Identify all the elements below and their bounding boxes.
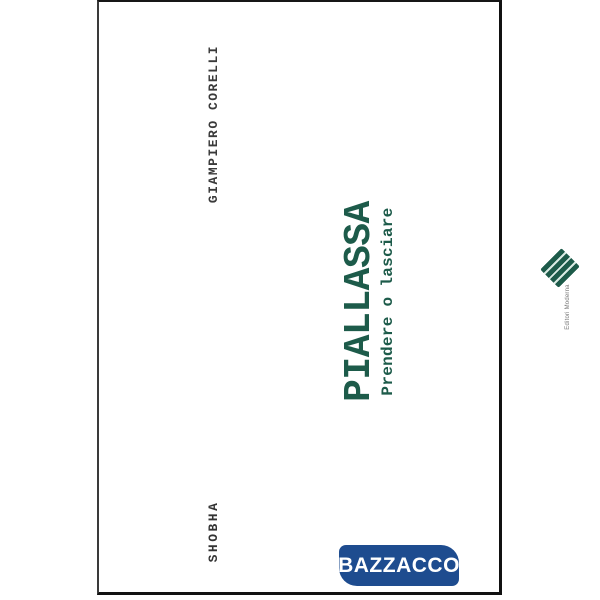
book-subtitle: Prendere o lasciare [379,207,397,396]
book-title: PIALLASSA [340,200,380,403]
publisher-logo-icon [540,248,580,288]
author-name: GIAMPIERO CORELLI [205,44,223,204]
bazzacco-watermark-label: BAZZACCO [338,554,460,578]
publisher-name: Editori Moderna [563,280,573,334]
photographer-credit: SHOBHA [205,500,223,563]
bazzacco-watermark-badge: BAZZACCO [339,545,459,586]
book-cover: GIAMPIERO CORELLI PIALLASSA Prendere o l… [97,0,502,595]
